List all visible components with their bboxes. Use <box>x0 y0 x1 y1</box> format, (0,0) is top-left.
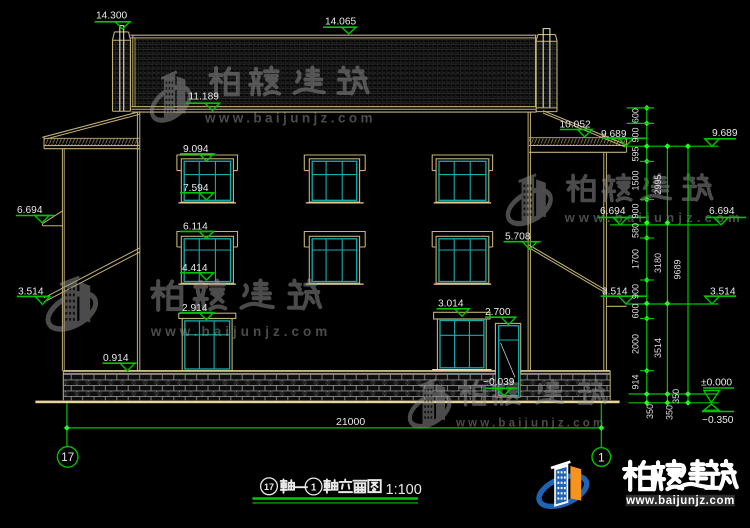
svg-text:600: 600 <box>630 303 640 318</box>
svg-text:1:100: 1:100 <box>386 482 422 498</box>
svg-text:914: 914 <box>630 374 640 389</box>
svg-text:350: 350 <box>671 389 681 404</box>
svg-text:900: 900 <box>630 284 640 299</box>
svg-text:11.189: 11.189 <box>189 92 220 103</box>
svg-text:3180: 3180 <box>653 253 663 273</box>
svg-text:6.694: 6.694 <box>17 205 43 216</box>
svg-text:14.065: 14.065 <box>325 17 356 28</box>
svg-text:17: 17 <box>264 482 274 492</box>
svg-text:595: 595 <box>630 146 640 161</box>
svg-text:2000: 2000 <box>630 334 640 354</box>
svg-text:14.300: 14.300 <box>96 11 127 22</box>
svg-text:3514: 3514 <box>653 338 663 358</box>
svg-text:2995: 2995 <box>653 174 663 194</box>
svg-text:350: 350 <box>665 405 675 420</box>
svg-text:21000: 21000 <box>336 416 365 428</box>
svg-text:1500: 1500 <box>630 170 640 190</box>
svg-text:1: 1 <box>598 450 605 464</box>
svg-text:0.914: 0.914 <box>103 353 129 364</box>
svg-text:www.baijunjz.com: www.baijunjz.com <box>150 324 332 339</box>
svg-text:±0.000: ±0.000 <box>701 377 732 388</box>
svg-text:9.689: 9.689 <box>712 128 738 139</box>
svg-text:www.baijunjz.com: www.baijunjz.com <box>625 495 735 507</box>
svg-text:9689: 9689 <box>673 259 683 279</box>
svg-text:350: 350 <box>645 404 655 419</box>
svg-text:−0.350: −0.350 <box>702 415 734 426</box>
svg-text:1: 1 <box>311 483 317 494</box>
svg-text:−0.039: −0.039 <box>483 377 515 388</box>
svg-text:3.014: 3.014 <box>438 299 464 310</box>
svg-text:6.694: 6.694 <box>709 206 735 217</box>
svg-text:580: 580 <box>630 223 640 238</box>
svg-text:www.baijunjz.com: www.baijunjz.com <box>204 111 376 126</box>
svg-text:1700: 1700 <box>630 249 640 269</box>
svg-text:900: 900 <box>630 203 640 218</box>
svg-text:17: 17 <box>61 452 74 464</box>
svg-text:900: 900 <box>630 127 640 142</box>
svg-text:600: 600 <box>630 108 640 123</box>
svg-text:6.694: 6.694 <box>600 206 626 217</box>
